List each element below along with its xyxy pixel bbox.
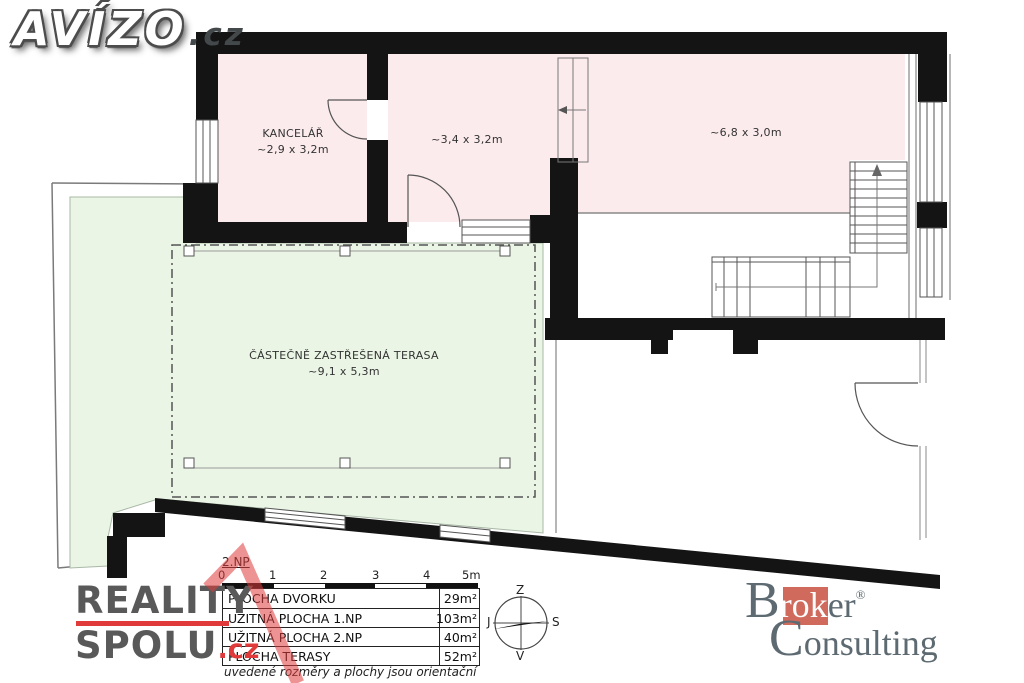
window-office-west — [196, 120, 218, 183]
row-value: 40m² — [439, 628, 479, 646]
reality-line2: SPOLU — [75, 624, 218, 667]
compass-south: J — [487, 615, 491, 629]
table-row: UŽITNÁ PLOCHA 1.NP 103m² — [223, 608, 479, 627]
table-row: PLOCHA DVORKU 29m² — [223, 589, 479, 608]
wall-notch — [673, 330, 733, 340]
scale-tick-4: 4 — [423, 568, 430, 582]
room-middle-dims: ~3,4 x 3,2m — [431, 133, 503, 147]
label-room-middle: ~3,4 x 3,2m — [431, 133, 503, 147]
door-courtyard-gate — [855, 340, 926, 540]
row-value: 29m² — [439, 589, 479, 608]
areas-table: PLOCHA DVORKU 29m² UŽITNÁ PLOCHA 1.NP 10… — [222, 588, 480, 666]
scale-tick-1: 1 — [269, 568, 276, 582]
reality-tld: .cz — [218, 634, 260, 665]
scale-tick-3: 3 — [372, 568, 379, 582]
avizo-tld: .cz — [189, 17, 246, 53]
window-middle-south — [462, 220, 530, 243]
broker-c: C — [769, 610, 804, 667]
window-east-lower — [920, 228, 942, 297]
row-value: 52m² — [439, 647, 479, 665]
row-value: 103m² — [439, 609, 479, 627]
label-room-large: ~6,8 x 3,0m — [710, 126, 782, 140]
window-east-upper — [920, 102, 942, 202]
broker-onsulting: onsulting — [804, 623, 938, 663]
avizo-logo: AVÍZO.cz — [14, 2, 246, 56]
terrace-dims: ~9,1 x 5,3m — [249, 365, 439, 379]
reality-line1: REALITY — [75, 582, 260, 619]
floorplan-page: { "logos": { "avizo": {"name": "AVÍZO", … — [0, 0, 1024, 683]
office-name: KANCELÁŘ — [257, 127, 329, 141]
dimensions-note: uvedené rozměry a plochy jsou orientační — [224, 665, 477, 679]
compass-rose — [493, 596, 549, 650]
table-row: PLOCHA TERASY 52m² — [223, 646, 479, 665]
table-row: UŽITNÁ PLOCHA 2.NP 40m² — [223, 627, 479, 646]
compass-east: V — [516, 649, 524, 663]
compass-north: S — [552, 615, 560, 629]
label-terrace: ČÁSTEČNĚ ZASTŘEŠENÁ TERASA ~9,1 x 5,3m — [249, 349, 439, 379]
reality-spolu-logo: REALITY SPOLU.cz — [75, 582, 260, 664]
floor-label: 2.NP — [222, 555, 250, 569]
broker-consulting-logo: Broker® Consulting — [745, 575, 938, 665]
avizo-wordmark: AVÍZO — [14, 2, 187, 56]
scale-tick-5: 5m — [462, 568, 481, 582]
label-office: KANCELÁŘ ~2,9 x 3,2m — [257, 127, 329, 157]
scale-tick-2: 2 — [320, 568, 327, 582]
room-large-dims: ~6,8 x 3,0m — [710, 126, 782, 140]
office-dims: ~2,9 x 3,2m — [257, 143, 329, 157]
stepped-wall — [113, 513, 165, 537]
compass-west: Z — [516, 583, 524, 597]
registered-mark-icon: ® — [856, 587, 866, 602]
terrace-name: ČÁSTEČNĚ ZASTŘEŠENÁ TERASA — [249, 349, 439, 363]
